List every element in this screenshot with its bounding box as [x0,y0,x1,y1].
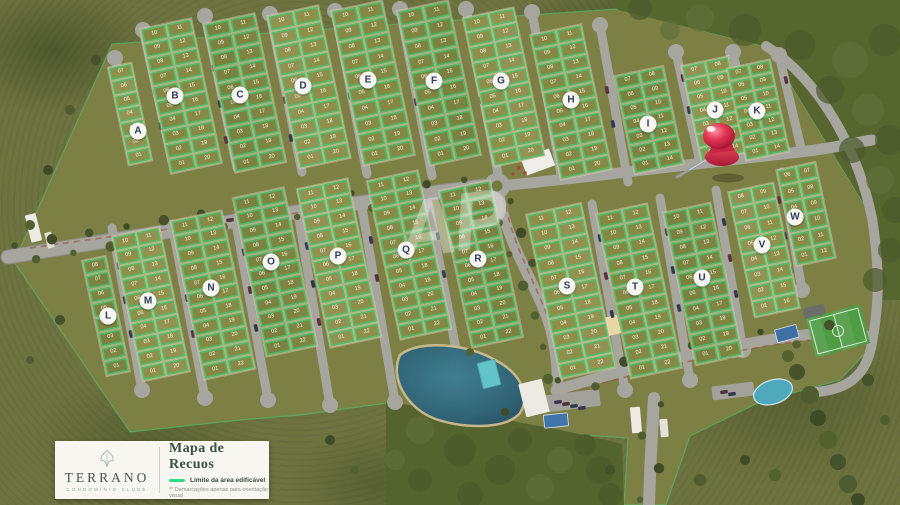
limit-line-swatch [169,479,185,482]
legend-title: Mapa de Recuos [169,441,269,473]
brand-name: TERRANO [65,470,150,486]
legend-note: ** Demarcações apenas para orientação vi… [169,487,269,499]
legend: TERRANO CONDOMÍNIO CLUBE Mapa de Recuos … [55,441,269,499]
limit-line-label: Limite da área edificável [190,477,265,484]
brand-tagline: CONDOMÍNIO CLUBE [66,487,147,492]
leaf-icon [98,449,116,469]
brand-logo: TERRANO CONDOMÍNIO CLUBE [55,441,159,499]
site-map-canvas: 0706050403020110110912081307140615051604… [0,0,900,505]
watermark: AP [392,171,510,279]
map-pin-icon[interactable] [655,110,785,200]
